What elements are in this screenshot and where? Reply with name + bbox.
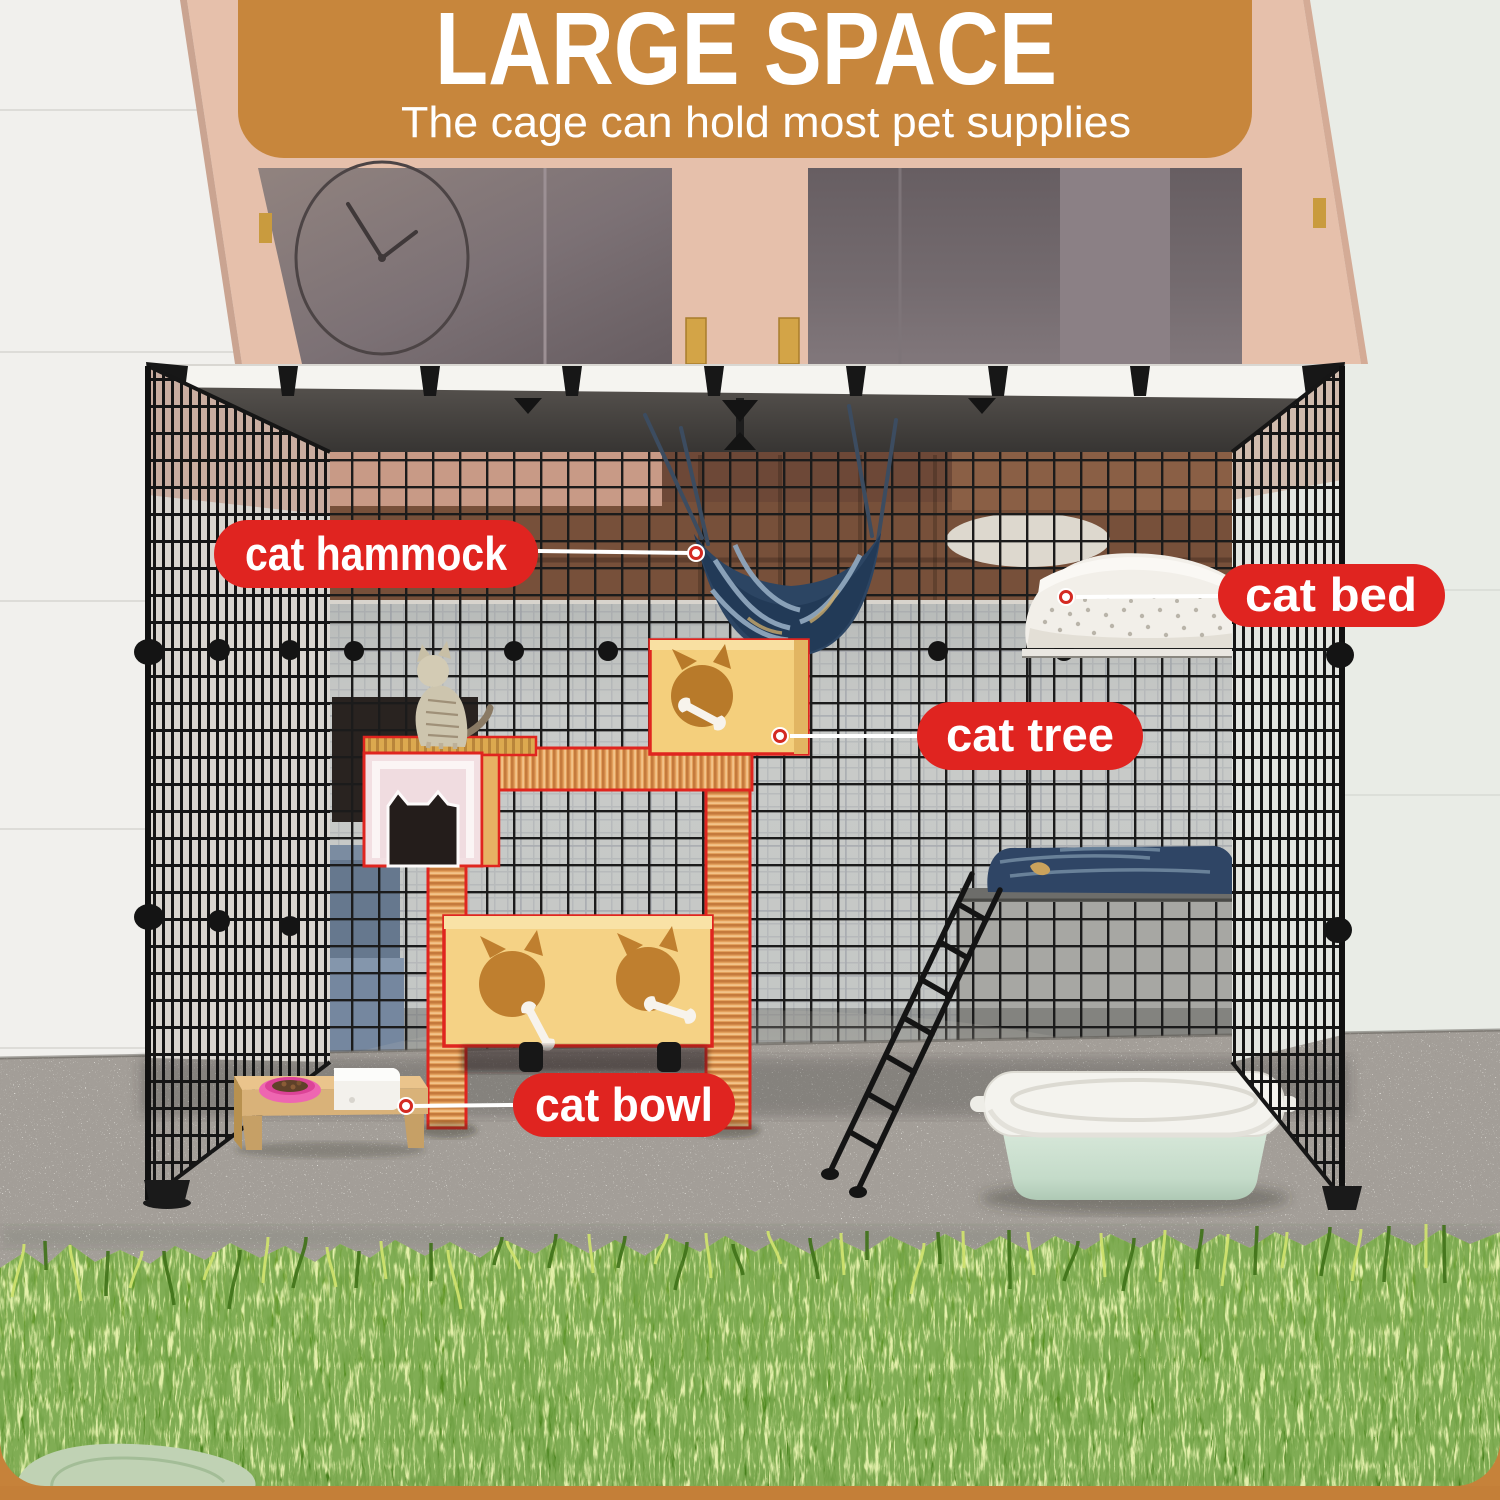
svg-text:cat bed: cat bed <box>1245 568 1417 621</box>
svg-text:LARGE SPACE: LARGE SPACE <box>435 0 1057 106</box>
svg-text:cat hammock: cat hammock <box>245 527 508 580</box>
svg-text:cat tree: cat tree <box>946 708 1114 761</box>
svg-text:The cage can hold most pet sup: The cage can hold most pet supplies <box>401 98 1131 147</box>
svg-text:cat bowl: cat bowl <box>535 1078 713 1131</box>
